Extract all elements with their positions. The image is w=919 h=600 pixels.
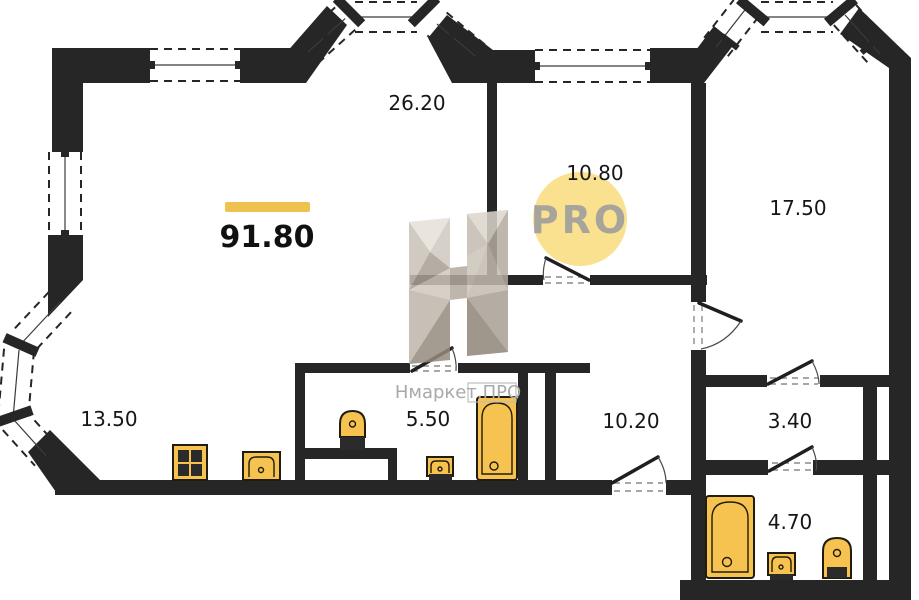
room-label-bathroom-2: 4.70 (768, 510, 813, 534)
room-label-corridor: 3.40 (768, 409, 813, 433)
room-label-bathroom: 5.50 (406, 407, 451, 431)
room-label-bedroom: 17.50 (769, 196, 826, 220)
room-label-hallway: 10.20 (602, 409, 659, 433)
bathtub-icon (477, 397, 517, 480)
total-area-accent-bar (225, 202, 310, 212)
room-label-living: 26.20 (388, 91, 445, 115)
toilet-2-icon (823, 538, 851, 578)
room-label-kitchen: 13.50 (80, 407, 137, 431)
room-label-niche: 10.80 (566, 161, 623, 185)
watermark-brand: Нмаркет.ПРО (395, 382, 521, 403)
kitchen-sink-icon (243, 452, 280, 480)
stove-icon (173, 445, 207, 480)
total-area-label: 91.80 (220, 220, 315, 255)
wall-sink-icon (427, 457, 453, 480)
floor-plan-page: Нмаркет.ПРО PRO 91.80 26.20 10.80 17.50 … (0, 0, 919, 600)
watermark-brand-text: Нмаркет.ПРО (395, 382, 521, 403)
bathtub-2-icon (706, 496, 754, 578)
floor-plan-svg: Нмаркет.ПРО PRO 91.80 26.20 10.80 17.50 … (0, 0, 919, 600)
pedestal-sink-icon (768, 553, 795, 580)
pro-logo-text: PRO (531, 198, 629, 242)
toilet-icon (340, 411, 365, 450)
